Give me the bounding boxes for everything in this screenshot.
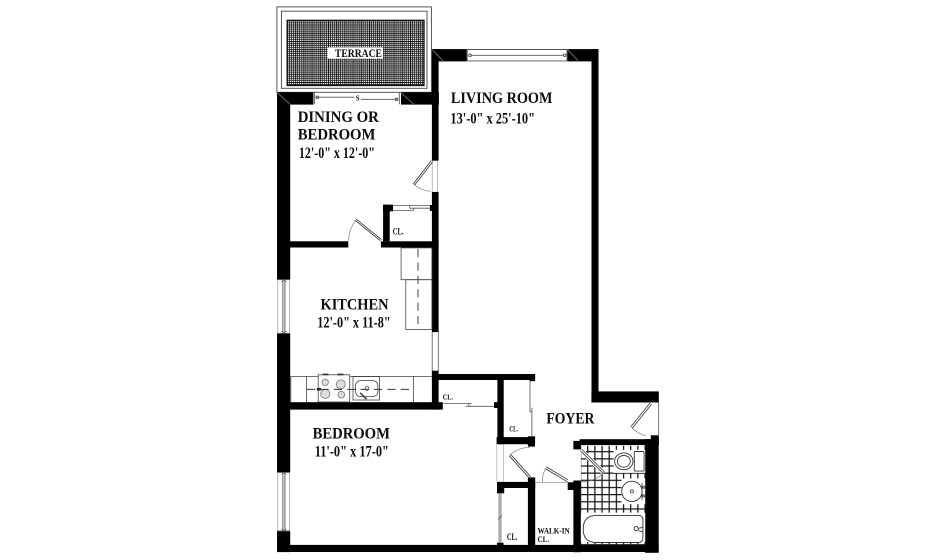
svg-text:TERRACE: TERRACE — [335, 46, 382, 60]
svg-text:LIVING ROOM: LIVING ROOM — [451, 88, 553, 107]
svg-text:KITCHEN: KITCHEN — [321, 294, 389, 313]
svg-text:13'-0" x 25'-10": 13'-0" x 25'-10" — [450, 108, 535, 127]
svg-text:FOYER: FOYER — [546, 408, 594, 427]
svg-text:12'-0" x 12'-0": 12'-0" x 12'-0" — [299, 143, 375, 162]
svg-text:11'-0" x 17-0": 11'-0" x 17-0" — [315, 442, 389, 461]
svg-text:CL.: CL. — [509, 423, 518, 433]
svg-text:DINING OR: DINING OR — [298, 107, 379, 126]
svg-text:CL.: CL. — [507, 532, 518, 542]
svg-text:S: S — [356, 95, 360, 103]
svg-text:12'-0" x 11-8": 12'-0" x 11-8" — [317, 313, 390, 332]
svg-text:CL.: CL. — [538, 535, 550, 544]
svg-text:CL.: CL. — [393, 228, 404, 238]
svg-text:BEDROOM: BEDROOM — [298, 125, 376, 144]
svg-text:BEDROOM: BEDROOM — [313, 423, 390, 442]
svg-text:CL.: CL. — [443, 393, 453, 402]
